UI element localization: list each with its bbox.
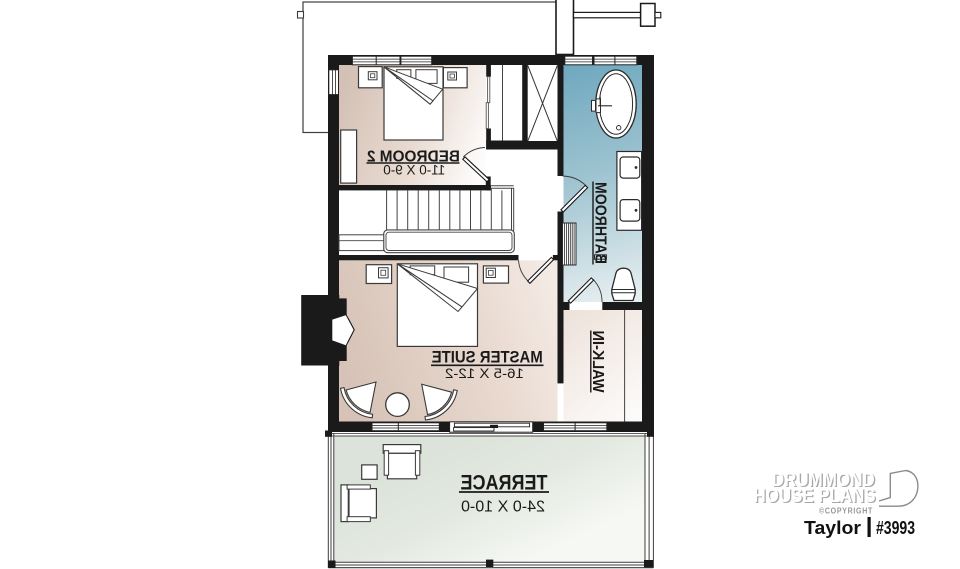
svg-text:MASTER SUITE: MASTER SUITE: [432, 349, 543, 367]
svg-text:©COPYRIGHT: ©COPYRIGHT: [819, 507, 873, 516]
svg-text:WALK-IN: WALK-IN: [589, 331, 606, 393]
svg-text:Taylor: Taylor: [804, 517, 861, 538]
svg-text:TERRACE: TERRACE: [461, 472, 548, 495]
svg-text:#3993: #3993: [876, 517, 915, 538]
svg-text:HOUSE PLANS: HOUSE PLANS: [754, 486, 876, 507]
svg-text:BATHROOM: BATHROOM: [591, 182, 608, 264]
svg-text:16-5 X 12-2: 16-5 X 12-2: [445, 365, 524, 381]
svg-text:24-0 X 10-0: 24-0 X 10-0: [461, 499, 545, 516]
svg-text:11-0 X 9-0: 11-0 X 9-0: [383, 163, 445, 178]
